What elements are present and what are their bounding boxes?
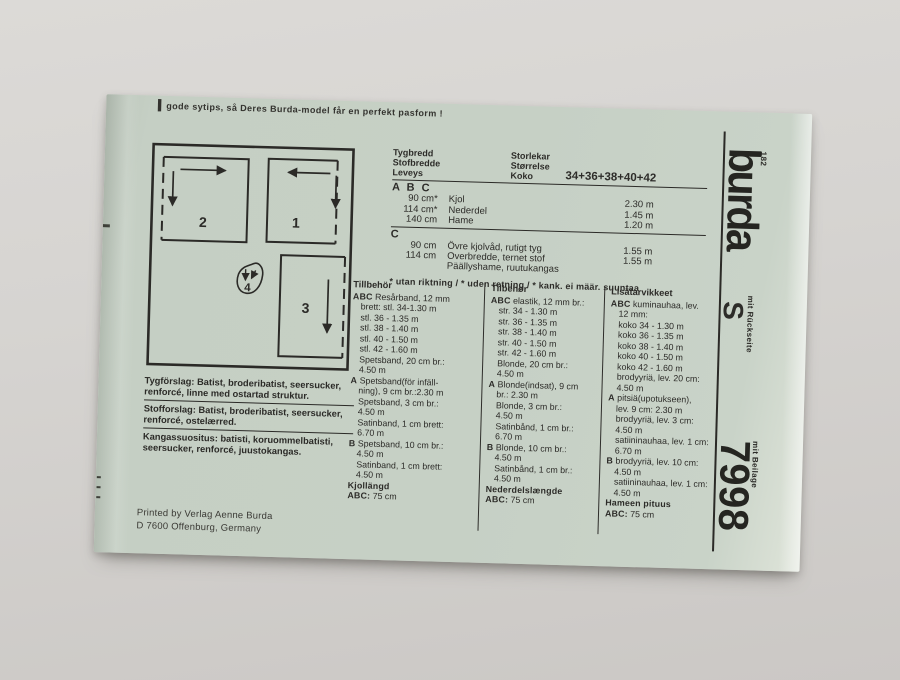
length-value [623,267,683,279]
pattern-piece-3 [278,255,345,358]
piece-1-label: 1 [292,214,300,230]
fold-mark [97,486,101,488]
notions-line: ABC: 75 cm [605,508,723,522]
piece-3-label: 3 [301,300,309,316]
notions-column-2: TilbehørABC elastik, 12 mm br.:str. 34 -… [485,283,605,508]
burda-logo: burda [722,148,761,250]
notions-line: ABC: 75 cm [347,490,477,504]
view-marker: ABC [611,298,631,309]
fold-mark [103,224,110,227]
piece-2-label: 2 [199,214,207,230]
view-marker: B [487,441,494,451]
table-sections: A B C90 cm*Kjol2.30 m114 cm*Nederdel1.45… [390,183,707,280]
top-note: ▍gode sytips, så Deres Burda-model får e… [158,101,443,120]
brand-strip-content: 182 burda mit Rückseite S mit Beilage 79… [712,131,810,553]
fabric-suggestions: Tygförslag: Batist, broderibatist, seers… [142,375,354,464]
fabric-suggestion: Kangassuositus: batisti, koruommelbatist… [142,432,353,462]
brand-strip: 182 burda mit Rückseite S mit Beilage 79… [712,131,810,553]
logo-block: 182 burda [722,148,767,251]
sizes-header-line: Koko [510,171,562,182]
view-marker: A [488,379,495,389]
fabric-width-header-line: Leveys [392,168,510,181]
publisher-imprint: Printed by Verlag Aenne BurdaD 7600 Offe… [136,507,272,536]
view-marker: ABC: [485,494,508,505]
fabric-width-table: TygbreddStofbreddeLeveys StorlekarStørre… [389,148,708,294]
fabric-width-value: 140 cm [391,214,437,225]
suggestion-label: Tygförslag: [144,375,197,386]
fold-mark [96,496,100,498]
note-text: gode sytips, så Deres Burda-model får en… [166,101,443,119]
view-marker: B [349,438,356,448]
pattern-piece-1 [266,159,337,244]
cutting-layout-diagram: 2 1 3 4 [145,141,357,373]
view-marker: A [608,392,615,402]
sizes-header: StorlekarStørrelseKoko [510,152,563,183]
view-marker: ABC: [347,490,370,501]
style-number-block: mit Beilage 7998 [715,440,761,532]
length-value: 1.20 m [624,221,684,233]
piece-4-label: 4 [244,282,251,294]
size-letter: S [720,301,747,353]
view-marker: ABC [353,291,373,302]
suggestion-label: Stofforslag: [144,404,199,416]
photo-of-pattern-envelope: { "colors":{"background":"#d4d2cf","pape… [0,0,900,680]
view-marker: Kjollängd [348,480,390,491]
notions-column-1: TillbehörABC Resårband, 12 mmbrett: stl.… [347,279,483,504]
view-marker: ABC [491,295,511,306]
view-marker: B [606,455,613,465]
style-number: 7998 [715,440,753,532]
fold-mark [97,476,101,478]
view-marker: ABC: [605,508,628,519]
fabric-width-header: TygbreddStofbreddeLeveys [392,148,511,181]
fabric-suggestion: Tygförslag: Batist, broderibatist, seers… [144,375,355,406]
view-marker: A [351,375,358,385]
notions-line: ABC: 75 cm [485,494,599,508]
size-block: mit Rückseite S [720,295,756,353]
suggestion-label: Kangassuositus: [143,432,221,444]
pattern-envelope-back: ▍gode sytips, så Deres Burda-model får e… [94,94,813,572]
size-range: 34+36+38+40+42 [565,170,656,185]
fabric-width-value [390,261,436,272]
fabric-suggestion: Stofforslag: Batist, broderibatist, seer… [143,404,354,435]
